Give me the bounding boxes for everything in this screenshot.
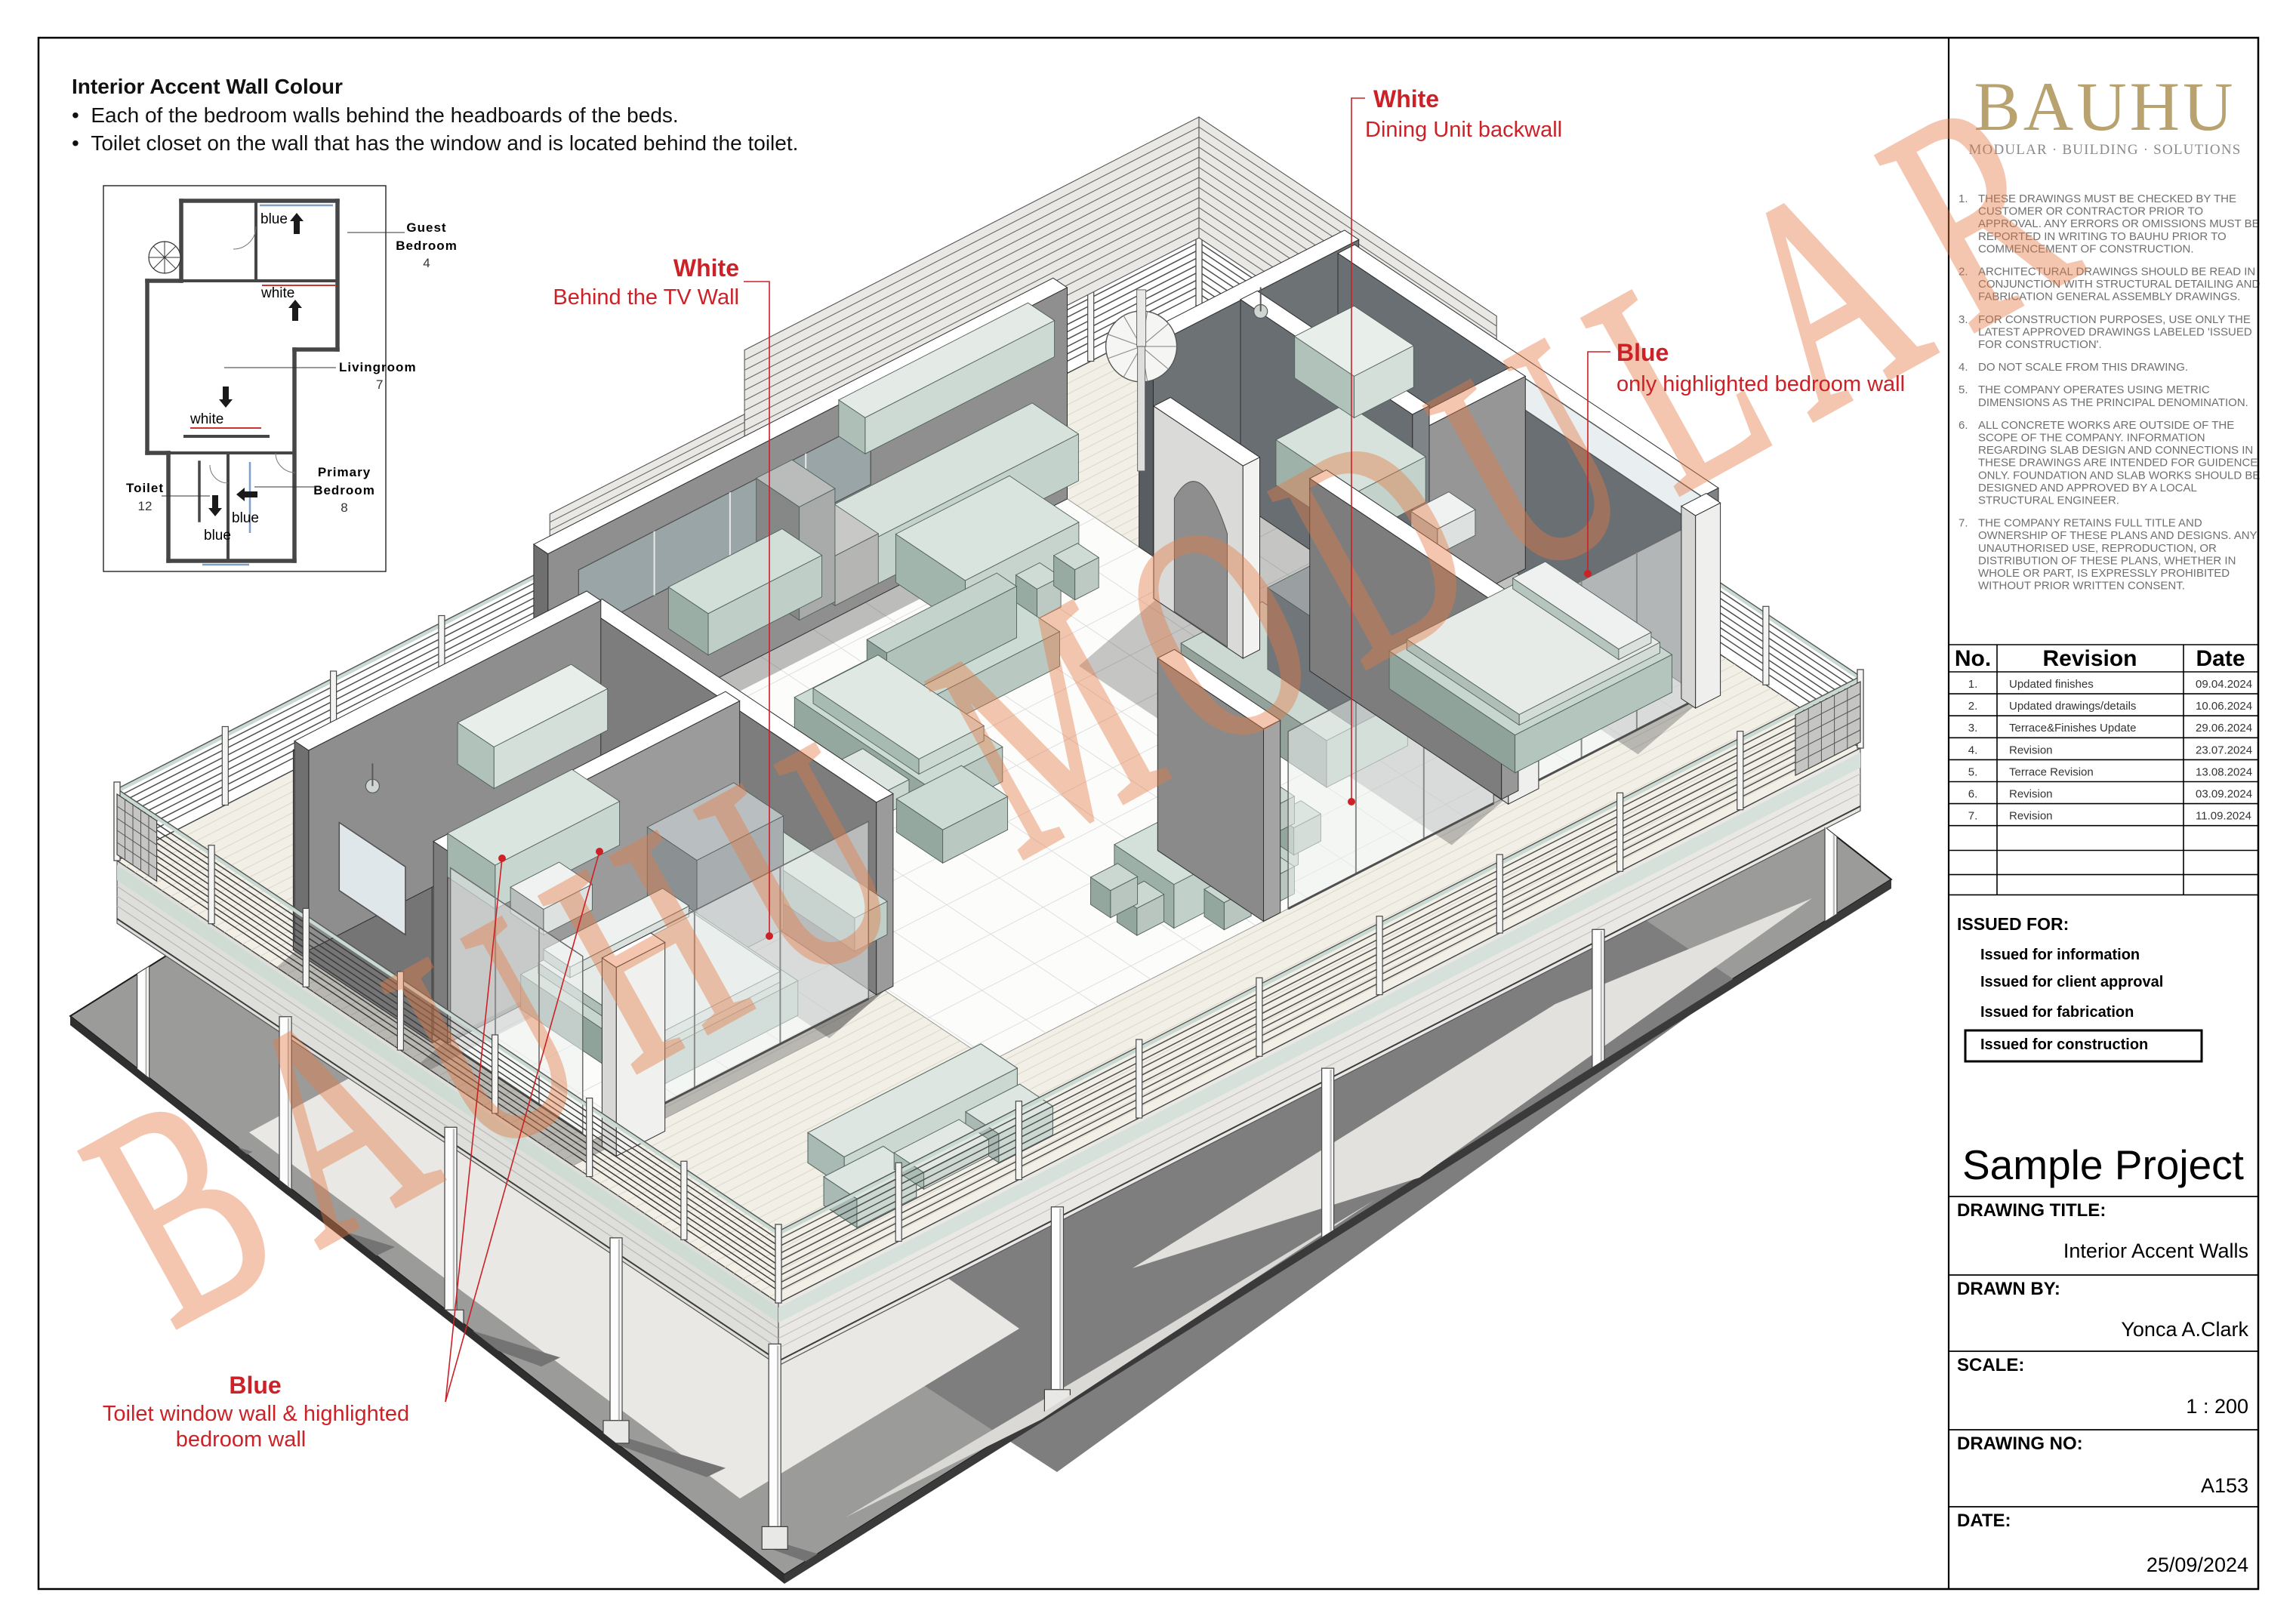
svg-text:Dining Unit backwall: Dining Unit backwall — [1365, 118, 1562, 142]
svg-text:Terrace&Finishes Update: Terrace&Finishes Update — [2009, 722, 2136, 735]
svg-text:Toilet: Toilet — [126, 481, 164, 495]
svg-text:Revision: Revision — [2009, 788, 2053, 801]
svg-text:7: 7 — [376, 377, 383, 392]
svg-text:THE COMPANY RETAINS FULL TITLE: THE COMPANY RETAINS FULL TITLE AND — [1978, 517, 2202, 530]
svg-text:White: White — [673, 254, 739, 282]
svg-text:6.: 6. — [1959, 419, 1968, 432]
svg-text:1 : 200: 1 : 200 — [2186, 1395, 2248, 1418]
svg-text:A153: A153 — [2201, 1474, 2248, 1497]
svg-text:Blue: Blue — [1616, 339, 1669, 366]
svg-text:WITHOUT PRIOR WRITTEN CONSENT.: WITHOUT PRIOR WRITTEN CONSENT. — [1978, 580, 2185, 593]
svg-text:ONLY. FOUNDATION AND SLAB WORK: ONLY. FOUNDATION AND SLAB WORKS SHOULD B… — [1978, 469, 2260, 482]
svg-text:Bedroom: Bedroom — [313, 483, 375, 497]
svg-text:• Toilet closet on the wall t: • Toilet closet on the wall that has the… — [72, 131, 798, 155]
svg-text:WHOLE OR PART, IS EXPRESSLY PR: WHOLE OR PART, IS EXPRESSLY PROHIBITED — [1978, 567, 2230, 580]
svg-text:ALL CONCRETE WORKS ARE OUTSIDE: ALL CONCRETE WORKS ARE OUTSIDE OF THE — [1978, 419, 2234, 432]
svg-text:Bedroom: Bedroom — [396, 239, 458, 253]
svg-text:8: 8 — [341, 500, 347, 515]
svg-text:bedroom wall: bedroom wall — [176, 1427, 306, 1452]
svg-text:Revision: Revision — [2042, 646, 2137, 671]
svg-text:Issued for fabrication: Issued for fabrication — [1980, 1004, 2134, 1021]
svg-text:Behind the TV Wall: Behind the TV Wall — [553, 285, 739, 310]
svg-text:DRAWING NO:: DRAWING NO: — [1957, 1434, 2083, 1454]
svg-text:Updated drawings/details: Updated drawings/details — [2009, 700, 2136, 713]
svg-text:Toilet window wall & highlight: Toilet window wall & highlighted — [103, 1402, 409, 1426]
svg-text:Sample Project: Sample Project — [1962, 1141, 2244, 1188]
svg-text:DRAWING TITLE:: DRAWING TITLE: — [1957, 1200, 2106, 1221]
svg-text:SCALE:: SCALE: — [1957, 1355, 2024, 1375]
svg-text:13.08.2024: 13.08.2024 — [2196, 765, 2252, 778]
svg-text:• Each of the bedroom walls b: • Each of the bedroom walls behind the h… — [72, 103, 679, 127]
svg-text:1.: 1. — [1968, 678, 1978, 691]
svg-text:7.: 7. — [1959, 517, 1968, 530]
svg-text:UNAUTHORISED USE, REPRODUCTION: UNAUTHORISED USE, REPRODUCTION, OR — [1978, 542, 2217, 555]
svg-text:white: white — [260, 285, 294, 301]
svg-text:Issued for construction: Issued for construction — [1980, 1036, 2148, 1053]
svg-text:Revision: Revision — [2009, 810, 2053, 823]
svg-text:Interior Accent Wall Colour: Interior Accent Wall Colour — [72, 75, 343, 98]
svg-text:DESIGNED AND APPROVED BY A LOC: DESIGNED AND APPROVED BY A LOCAL — [1978, 482, 2197, 494]
svg-text:Blue: Blue — [229, 1372, 281, 1399]
svg-text:09.04.2024: 09.04.2024 — [2196, 678, 2252, 691]
svg-text:DISTRIBUTION OF THESE PLANS, W: DISTRIBUTION OF THESE PLANS, WHETHER IN — [1978, 554, 2236, 567]
svg-text:Primary: Primary — [318, 465, 371, 479]
svg-text:blue: blue — [260, 211, 288, 227]
svg-text:12: 12 — [138, 499, 153, 513]
svg-text:STRUCTURAL ENGINEER.: STRUCTURAL ENGINEER. — [1978, 494, 2119, 507]
svg-text:Yonca A.Clark: Yonca A.Clark — [2121, 1318, 2248, 1341]
svg-text:Guest: Guest — [406, 220, 446, 235]
svg-text:ISSUED FOR:: ISSUED FOR: — [1957, 914, 2069, 934]
svg-text:white: white — [190, 411, 223, 427]
svg-text:Updated finishes: Updated finishes — [2009, 678, 2094, 691]
svg-text:29.06.2024: 29.06.2024 — [2196, 722, 2252, 735]
svg-text:5.: 5. — [1968, 765, 1978, 778]
svg-text:25/09/2024: 25/09/2024 — [2147, 1554, 2248, 1576]
svg-text:OWNERSHIP OF THESE PLANS AND D: OWNERSHIP OF THESE PLANS AND DESIGNS. AN… — [1978, 529, 2257, 542]
svg-text:Revision: Revision — [2009, 744, 2053, 756]
svg-text:23.07.2024: 23.07.2024 — [2196, 744, 2252, 756]
svg-text:blue: blue — [232, 510, 259, 526]
svg-text:No.: No. — [1955, 646, 1991, 671]
svg-text:11.09.2024: 11.09.2024 — [2196, 810, 2251, 823]
svg-text:DATE:: DATE: — [1957, 1511, 2011, 1531]
svg-text:03.09.2024: 03.09.2024 — [2196, 788, 2252, 801]
svg-text:DRAWN BY:: DRAWN BY: — [1957, 1279, 2060, 1299]
svg-text:White: White — [1373, 85, 1439, 112]
svg-text:4.: 4. — [1968, 744, 1978, 756]
svg-text:only highlighted bedroom wall: only highlighted bedroom wall — [1616, 372, 1905, 396]
svg-text:3.: 3. — [1968, 722, 1978, 735]
svg-text:Issued for client approval: Issued for client approval — [1980, 974, 2163, 990]
svg-text:6.: 6. — [1968, 788, 1978, 801]
svg-text:4: 4 — [423, 256, 430, 270]
svg-text:10.06.2024: 10.06.2024 — [2196, 700, 2252, 713]
svg-text:blue: blue — [204, 528, 231, 544]
svg-text:SCOPE OF THE COMPANY. INFORMAT: SCOPE OF THE COMPANY. INFORMATION — [1978, 432, 2205, 445]
svg-text:Livingroom: Livingroom — [339, 360, 417, 374]
svg-text:THESE DRAWINGS ARE INTENDED FO: THESE DRAWINGS ARE INTENDED FOR GUIDENCE — [1978, 457, 2257, 470]
svg-text:2.: 2. — [1968, 700, 1978, 713]
svg-text:Date: Date — [2196, 646, 2245, 671]
svg-text:DIMENSIONS AS THE PRINCIPAL DE: DIMENSIONS AS THE PRINCIPAL DENOMINATION… — [1978, 396, 2248, 409]
svg-text:Issued for information: Issued for information — [1980, 947, 2140, 963]
svg-text:7.: 7. — [1968, 810, 1978, 823]
svg-text:Interior Accent Walls: Interior Accent Walls — [2063, 1240, 2248, 1262]
svg-text:REGARDING SLAB DESIGN AND CONN: REGARDING SLAB DESIGN AND CONNECTIONS IN — [1978, 444, 2253, 457]
svg-text:Terrace Revision: Terrace Revision — [2009, 765, 2094, 778]
